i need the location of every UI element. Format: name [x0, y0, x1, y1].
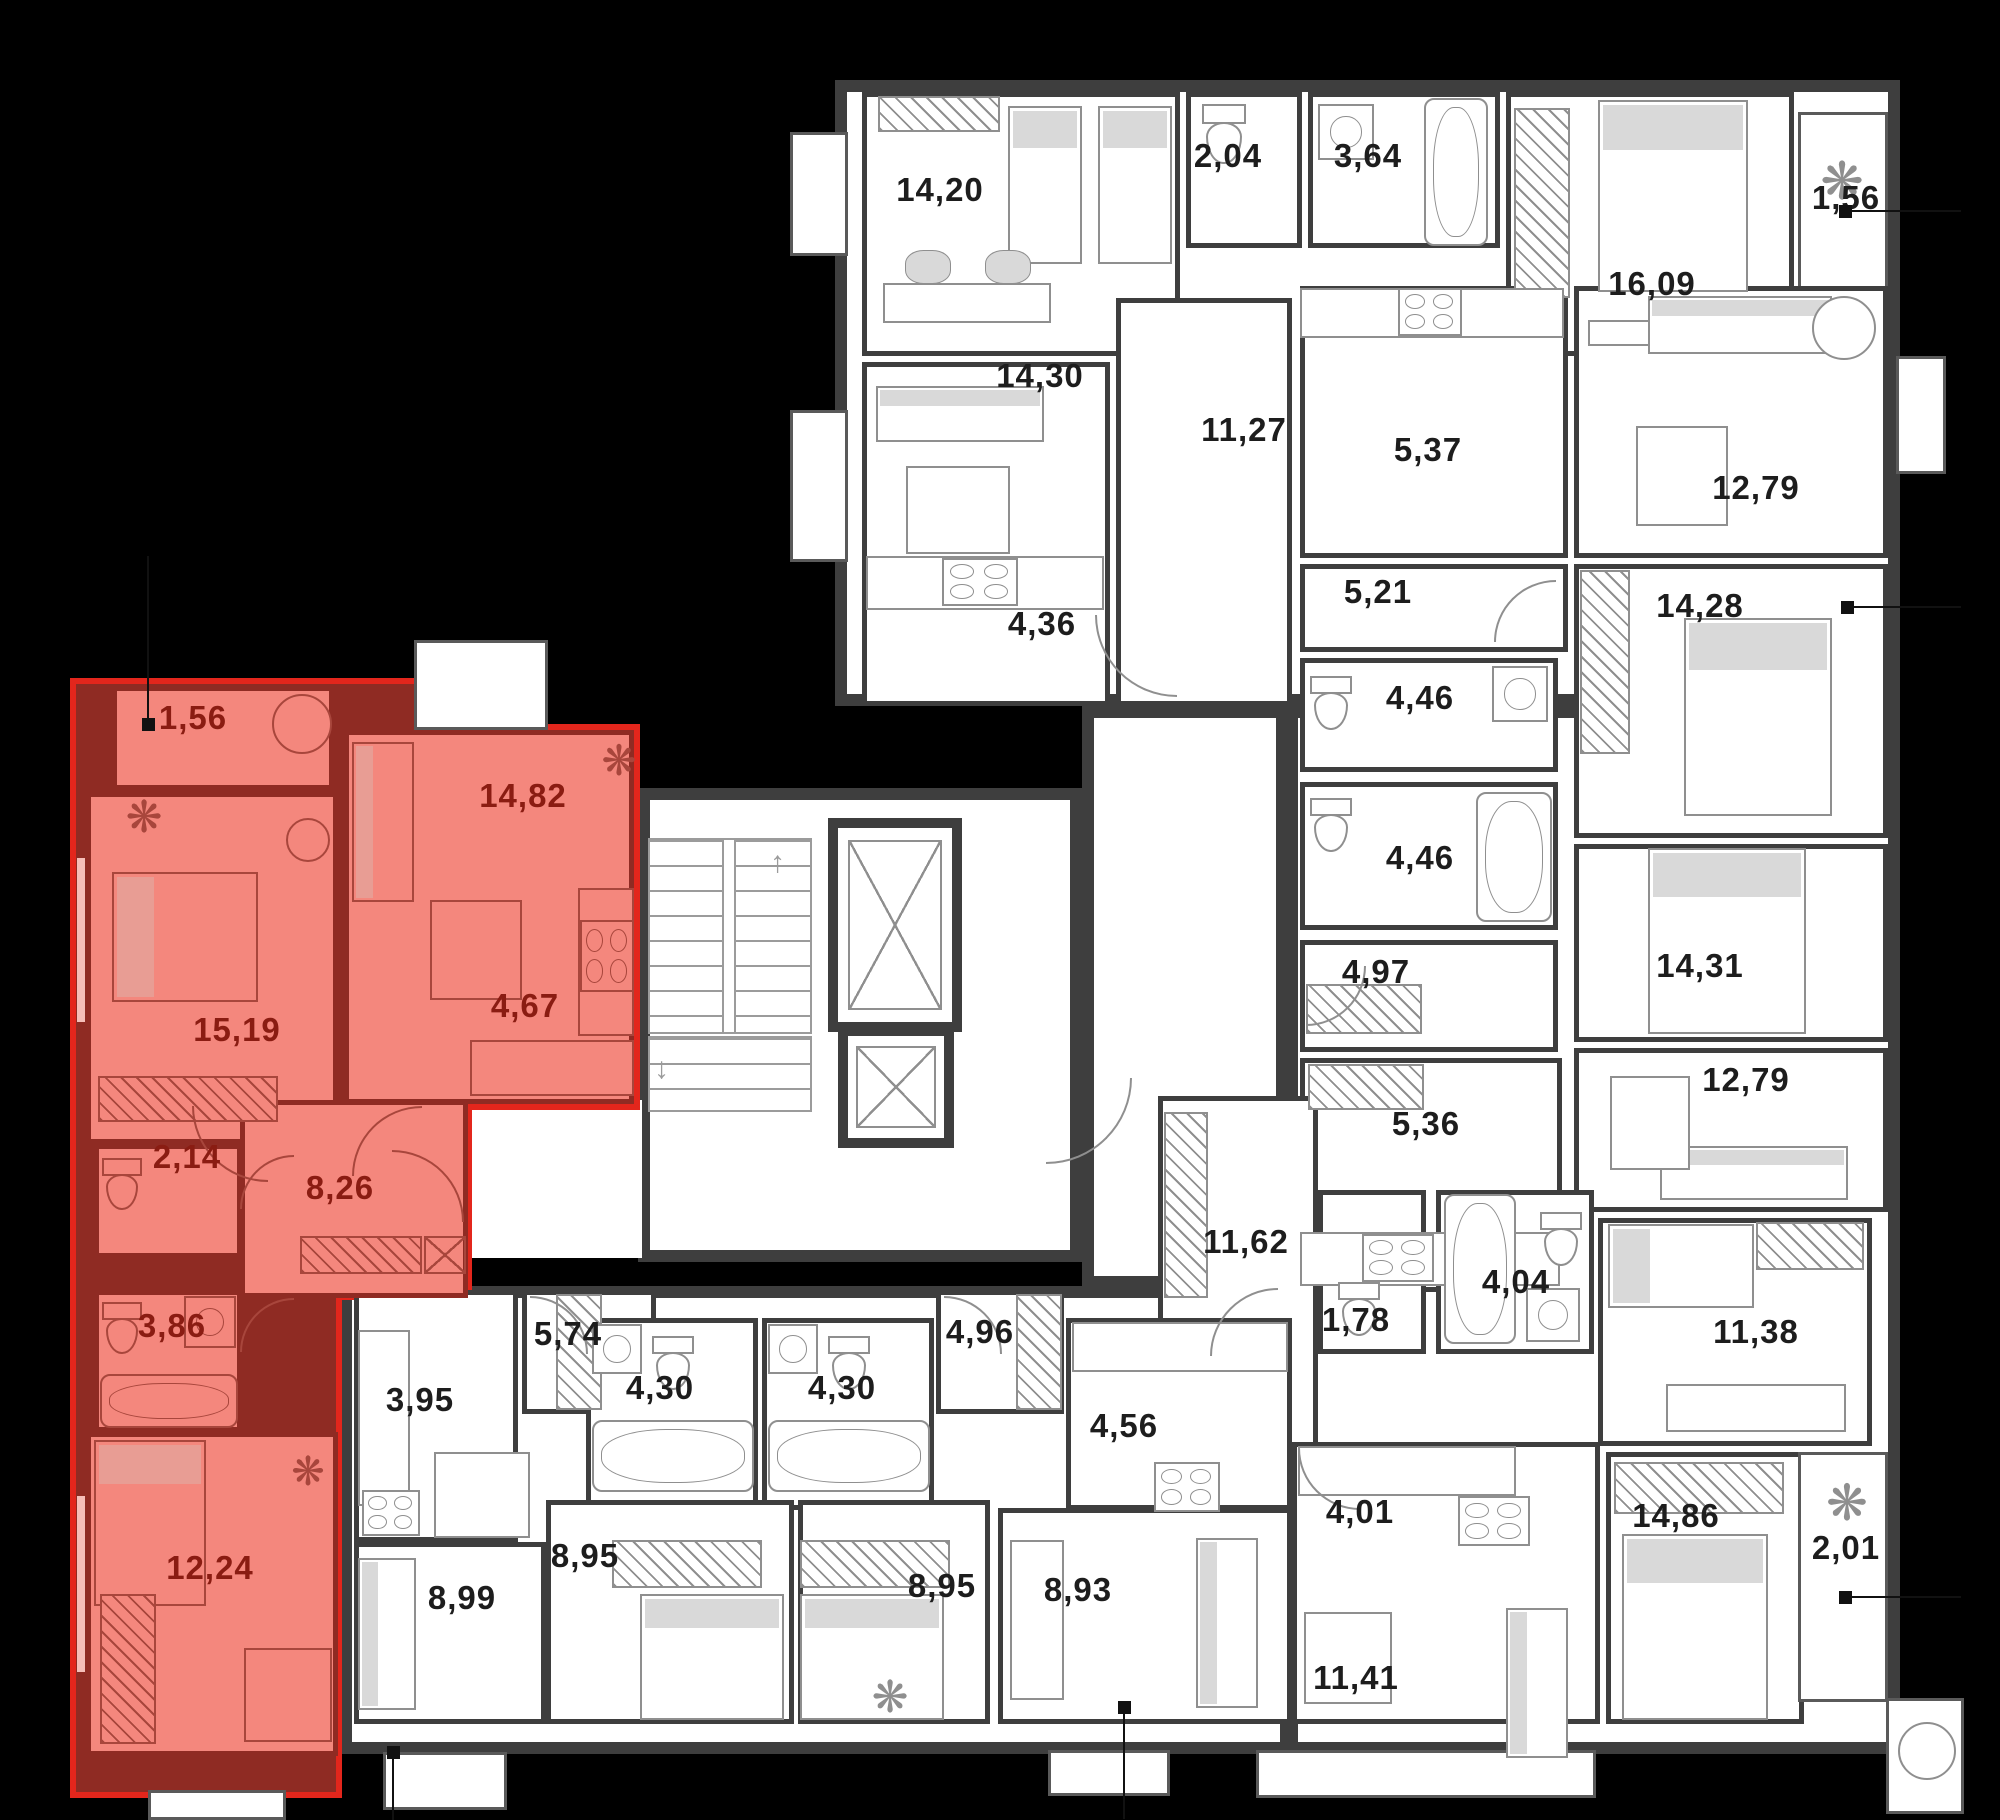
hatch-icon [1756, 1222, 1864, 1270]
bathtub-icon [1424, 98, 1488, 246]
pillow [1627, 1539, 1763, 1583]
burner [610, 929, 627, 952]
stove-icon [1398, 288, 1462, 336]
counter-icon [470, 1040, 634, 1096]
room-area-label: 3,64 [1334, 137, 1402, 175]
sofa-back [1200, 1542, 1217, 1704]
balcony [148, 1790, 286, 1820]
round-chair-icon [1812, 296, 1876, 360]
room-area-label: 3,86 [138, 1307, 206, 1345]
hatch-icon [300, 1236, 422, 1274]
pillow [99, 1445, 201, 1484]
dimension-line [1853, 606, 1961, 608]
window [77, 1496, 85, 1672]
toilet-bowl [1544, 1228, 1578, 1266]
hatch-icon [1016, 1294, 1062, 1410]
plant-icon: ❋ [122, 796, 166, 840]
selected-apartment-outline [70, 678, 420, 684]
floor-plan: ↑↓❋❋❋❋❋❋14,202,043,6416,091,5614,3011,27… [0, 0, 2000, 1820]
burner [586, 929, 603, 952]
tub-basin [777, 1429, 921, 1483]
burner [1433, 294, 1453, 309]
stove-icon [1458, 1496, 1530, 1546]
bathtub-icon [768, 1420, 930, 1492]
counter-icon [883, 283, 1051, 323]
room-area-label: 14,31 [1656, 947, 1744, 985]
room-area-label: 12,24 [166, 1549, 254, 1587]
room-area-label: 4,97 [1342, 953, 1410, 991]
round-chair-icon [272, 694, 332, 754]
room-area-label: 1,56 [159, 699, 227, 737]
stairs-up-arrow: ↑ [770, 846, 785, 880]
room-area-label: 2,01 [1812, 1529, 1880, 1567]
room-area-label: 4,04 [1482, 1263, 1550, 1301]
crossed-box-icon [424, 1236, 466, 1274]
bed-icon [112, 872, 258, 1002]
room-area-label: 5,36 [1392, 1105, 1460, 1143]
burner [1405, 314, 1425, 329]
room-area-label: 8,93 [1044, 1571, 1112, 1609]
burner [394, 1515, 412, 1529]
room-area-label: 8,95 [908, 1567, 976, 1605]
selected-apartment-outline [466, 1104, 640, 1110]
room-area-label: 2,14 [153, 1138, 221, 1176]
room-area-label: 14,30 [996, 357, 1084, 395]
bed-icon [640, 1594, 784, 1720]
window [77, 858, 85, 1022]
room-area-label: 14,20 [896, 171, 984, 209]
toilet-icon [1310, 676, 1352, 730]
washer-drum [779, 1335, 807, 1363]
pillow [1603, 105, 1743, 150]
round-chair-icon [286, 818, 330, 862]
room-area-label: 12,79 [1712, 469, 1800, 507]
table-icon [430, 900, 522, 1000]
room-area-label: 3,95 [386, 1381, 454, 1419]
burner [1401, 1260, 1424, 1275]
sofa-icon [358, 1558, 416, 1710]
table-icon [906, 466, 1010, 554]
burner [950, 564, 974, 579]
room-area-label: 11,62 [1203, 1223, 1289, 1261]
counter-icon [1010, 1540, 1064, 1700]
pillow [1103, 111, 1167, 148]
table-icon [244, 1648, 332, 1742]
room-area-label: 5,74 [534, 1315, 602, 1353]
balcony [790, 132, 848, 256]
room-area-label: 2,04 [1194, 137, 1262, 175]
room-area-label: 15,19 [193, 1011, 281, 1049]
pillow [1613, 1229, 1650, 1303]
room-area-label: 8,95 [551, 1537, 619, 1575]
balcony [1048, 1750, 1170, 1796]
room-area-label: 14,82 [479, 777, 567, 815]
bathtub-icon [1476, 792, 1552, 922]
burner [1161, 1469, 1182, 1485]
toilet-bowl [1314, 692, 1348, 730]
stove-icon [1362, 1234, 1434, 1282]
burner [1465, 1503, 1488, 1519]
dimension-line [1123, 1713, 1125, 1819]
sofa-back [356, 746, 373, 898]
hatch-icon [100, 1594, 156, 1744]
room-area-label: 4,96 [946, 1313, 1014, 1351]
room-area-label: 11,41 [1313, 1659, 1399, 1697]
burner [1465, 1523, 1488, 1539]
dimension-line [1851, 1596, 1961, 1598]
room-area-label: 8,26 [306, 1169, 374, 1207]
tub-basin [109, 1383, 229, 1419]
toilet-icon [102, 1302, 142, 1354]
dimension-line [392, 1758, 394, 1820]
hatch-icon [878, 96, 1000, 132]
washing-machine-icon [1492, 666, 1548, 722]
room-area-label: 5,37 [1394, 431, 1462, 469]
tub-basin [1485, 801, 1543, 913]
room-area-label: 4,46 [1386, 839, 1454, 877]
sofa-back [1510, 1612, 1527, 1754]
room-area-label: 4,01 [1326, 1493, 1394, 1531]
burner [394, 1496, 412, 1510]
plant-icon: ❋ [868, 1676, 912, 1720]
dimension-line [1851, 210, 1961, 212]
burner [950, 584, 974, 599]
dimension-marker [142, 718, 155, 731]
washer-drum [1504, 678, 1535, 709]
burner [1190, 1489, 1211, 1505]
washing-machine-icon [768, 1324, 818, 1374]
bed-icon [1622, 1534, 1768, 1720]
room-area-label: 14,86 [1632, 1497, 1720, 1535]
toilet-bowl [106, 1318, 138, 1354]
burner [1497, 1523, 1520, 1539]
stairs-down-arrow: ↓ [654, 1052, 669, 1086]
burner [1497, 1503, 1520, 1519]
plant-icon: ❋ [598, 740, 640, 782]
bathtub-icon [100, 1374, 238, 1428]
counter-icon [1666, 1384, 1846, 1432]
plant-icon: ❋ [288, 1452, 328, 1492]
burner [586, 959, 603, 982]
sofa-back [1664, 1150, 1844, 1165]
bed-icon [1608, 1224, 1754, 1308]
toilet-bowl [106, 1174, 138, 1210]
pillow [645, 1599, 779, 1628]
toilet-bowl [1314, 814, 1348, 852]
burner [610, 959, 627, 982]
room-area-label: 14,28 [1656, 587, 1744, 625]
stair-landing [466, 1100, 642, 1258]
pillow [1013, 111, 1077, 148]
selected-apartment-outline [70, 678, 76, 1798]
burner [1433, 314, 1453, 329]
sofa-icon [352, 742, 414, 902]
burner [984, 584, 1008, 599]
stove-icon [942, 558, 1018, 606]
washer-drum [603, 1335, 631, 1363]
stove-icon [1154, 1462, 1220, 1512]
table-icon [1610, 1076, 1690, 1170]
toilet-icon [1310, 798, 1352, 852]
sofa-icon [1506, 1608, 1568, 1758]
balcony [414, 640, 548, 730]
burner [984, 564, 1008, 579]
sofa-icon [1196, 1538, 1258, 1708]
room-area-label: 4,30 [808, 1369, 876, 1407]
toilet-icon [102, 1158, 142, 1210]
hatch-icon [1164, 1112, 1208, 1298]
hatch-icon [1580, 570, 1630, 754]
room-area-label: 12,79 [1702, 1061, 1790, 1099]
hatch-icon [612, 1540, 762, 1588]
round-chair-icon [1898, 1722, 1956, 1780]
bed-icon [1684, 618, 1832, 816]
burner [1405, 294, 1425, 309]
balcony [383, 1752, 507, 1810]
room-area-label: 4,56 [1090, 1407, 1158, 1445]
room-area-label: 4,30 [626, 1369, 694, 1407]
room-area-label: 4,46 [1386, 679, 1454, 717]
burner [1369, 1260, 1392, 1275]
elevator-cab-icon [848, 840, 942, 1010]
burner [1369, 1240, 1392, 1255]
balcony [1896, 356, 1946, 474]
room-area-label: 4,36 [1008, 605, 1076, 643]
washer-drum [1538, 1300, 1568, 1330]
tub-basin [1433, 107, 1479, 237]
room-area-label: 8,99 [428, 1579, 496, 1617]
table-icon [434, 1452, 530, 1538]
hatch-icon [1514, 108, 1570, 298]
chair-icon [985, 250, 1031, 284]
dimension-line [147, 556, 149, 718]
room-area-label: 16,09 [1608, 265, 1696, 303]
stairs [648, 1036, 812, 1112]
sofa-back [362, 1562, 378, 1706]
pillow [117, 877, 154, 997]
bathtub-icon [592, 1420, 754, 1492]
room-area-label: 11,27 [1201, 411, 1287, 449]
room-area-label: 11,38 [1713, 1313, 1799, 1351]
bed-icon [1648, 848, 1806, 1034]
burner [368, 1496, 386, 1510]
burner [1190, 1469, 1211, 1485]
plant-icon: ❋ [1822, 1478, 1872, 1528]
elevator-cab-icon [856, 1046, 936, 1128]
stove-icon [362, 1490, 420, 1536]
room-area-label: 4,67 [491, 987, 559, 1025]
tub-basin [601, 1429, 745, 1483]
toilet-icon [1540, 1212, 1582, 1266]
room-area-label: 5,21 [1344, 573, 1412, 611]
burner [1401, 1240, 1424, 1255]
balcony [790, 410, 848, 562]
bed-icon [1008, 106, 1082, 264]
chair-icon [905, 250, 951, 284]
stove-icon [580, 920, 634, 992]
hatch-icon [1308, 1064, 1424, 1110]
bed-icon [1098, 106, 1172, 264]
pillow [1689, 623, 1827, 670]
stairs-divider [722, 838, 736, 1034]
pillow [1653, 853, 1801, 897]
burner [1161, 1489, 1182, 1505]
sofa-icon [1648, 296, 1832, 354]
burner [368, 1515, 386, 1529]
room-area-label: 1,78 [1322, 1301, 1390, 1339]
bed-icon [1598, 100, 1748, 292]
